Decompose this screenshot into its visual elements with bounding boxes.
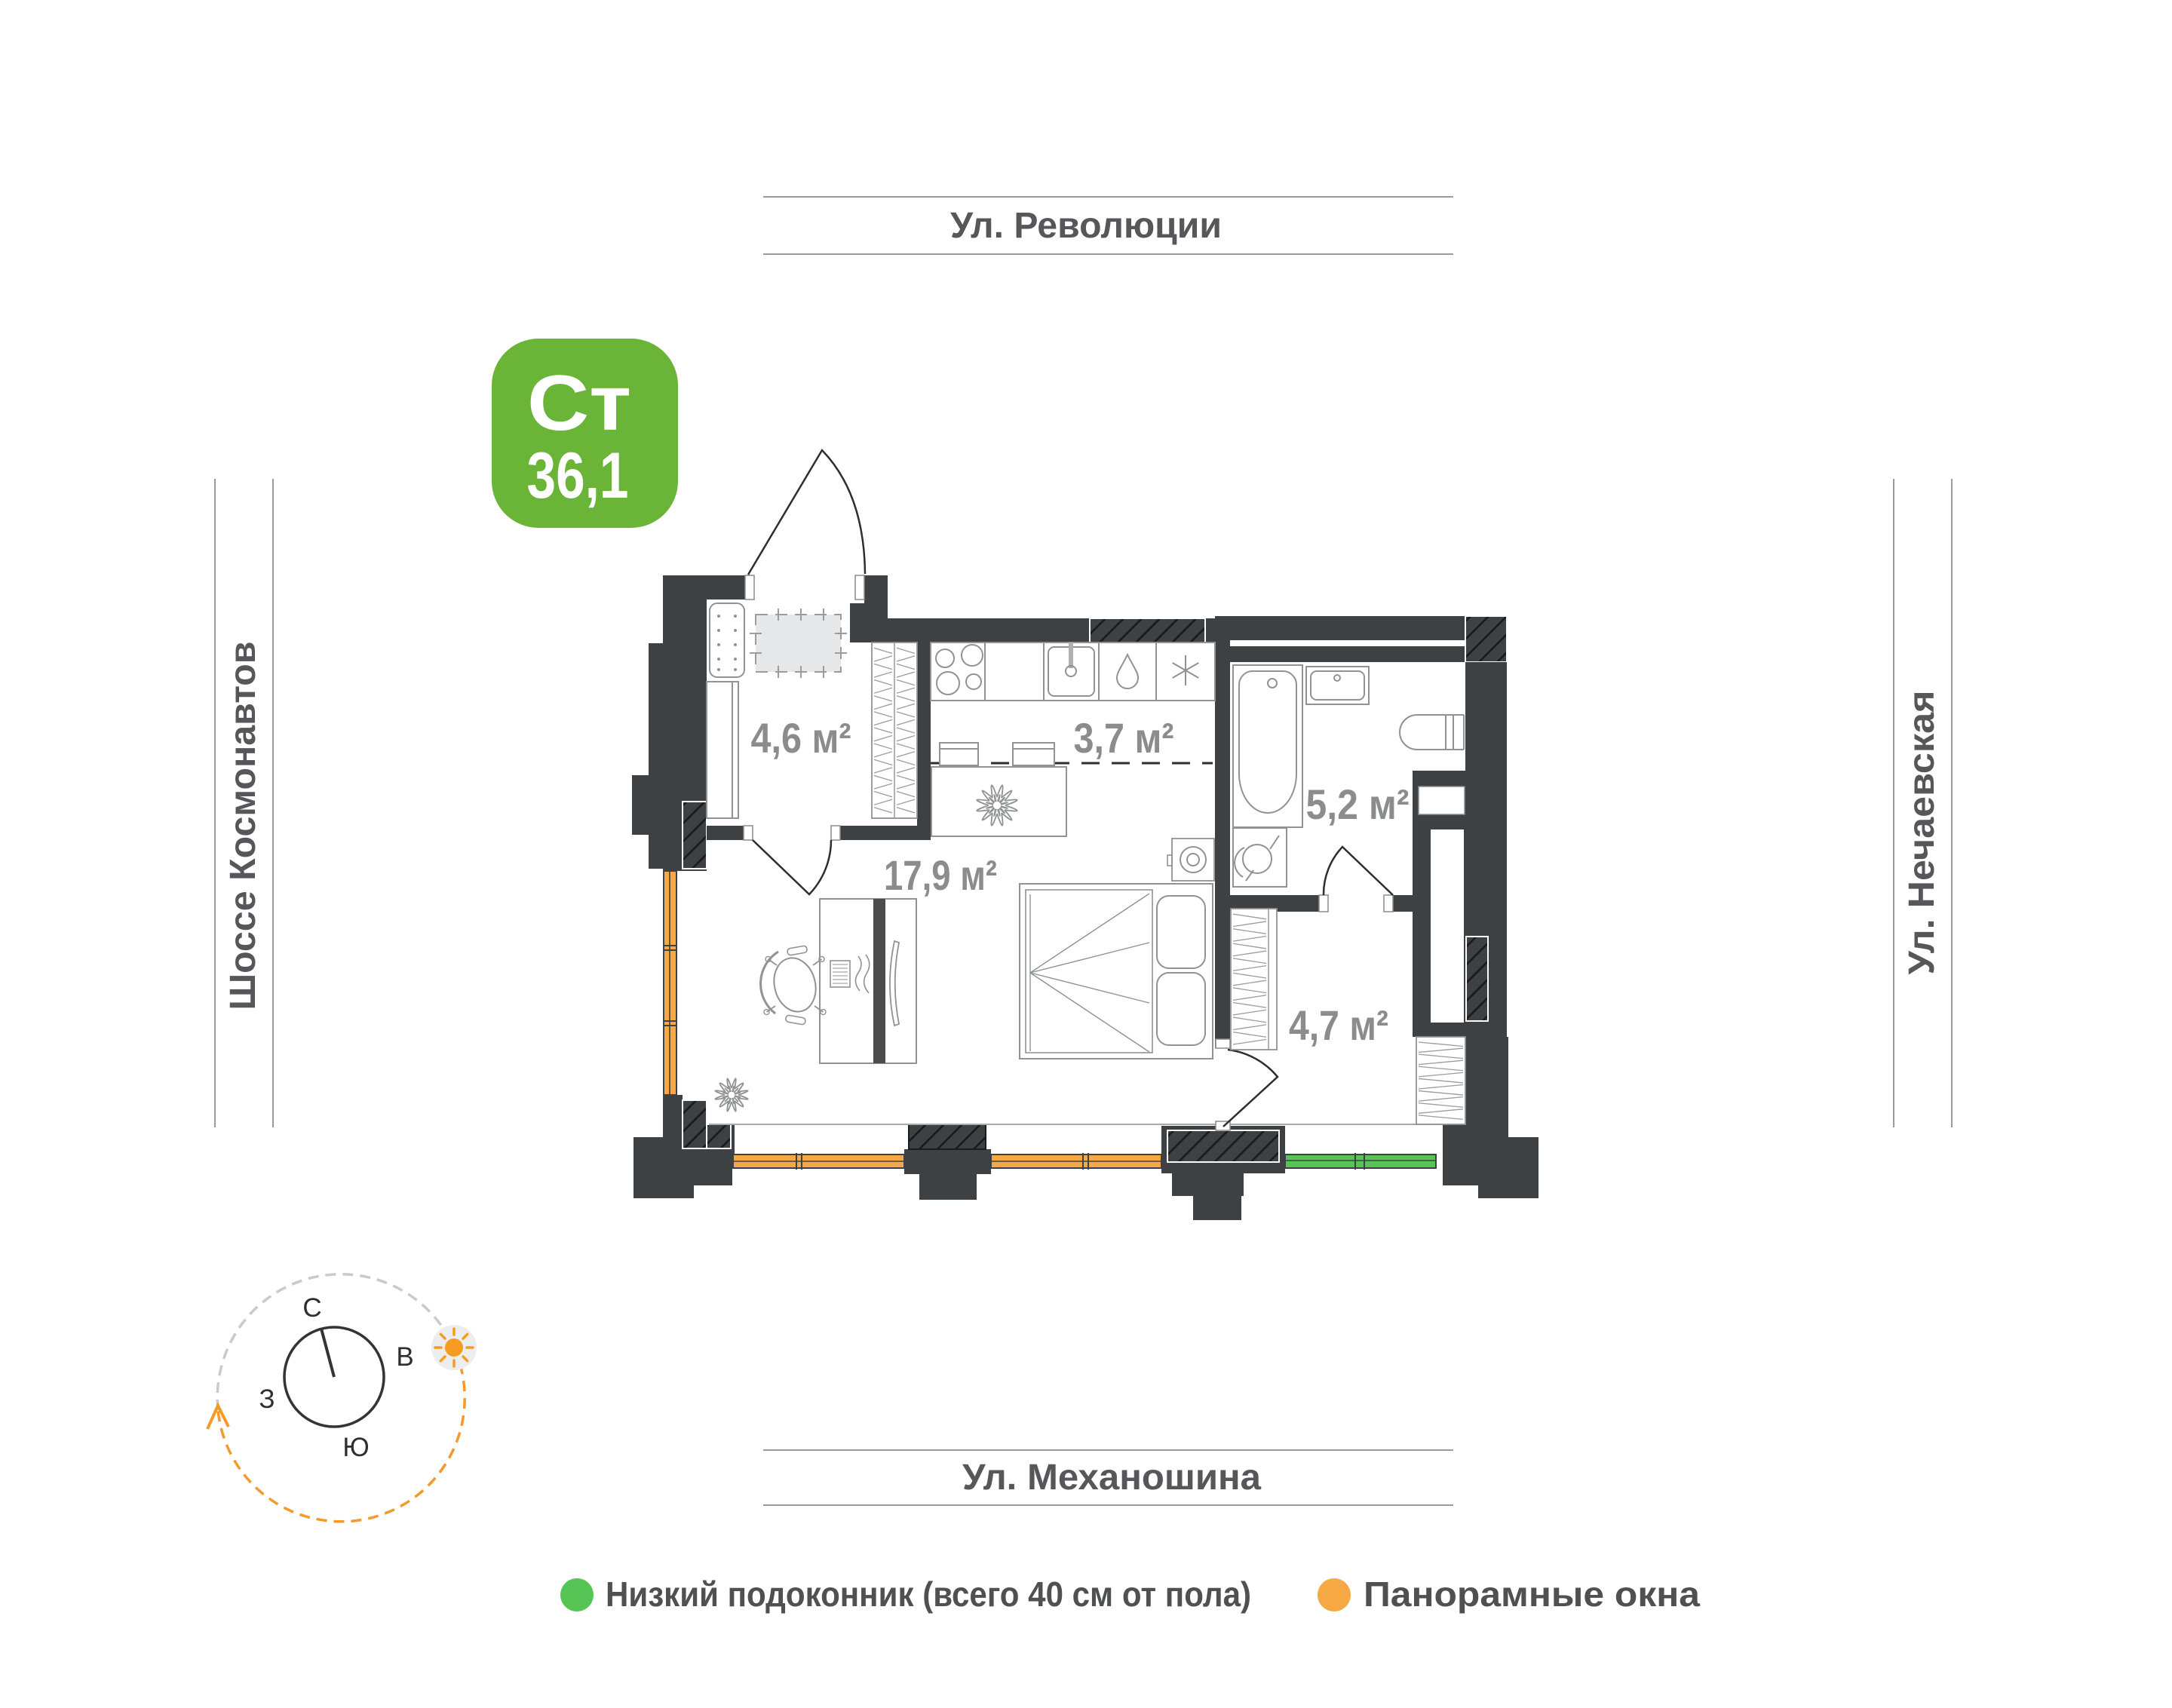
svg-text:Ст: Ст: [527, 360, 631, 447]
svg-text:5,2 м²: 5,2 м²: [1306, 780, 1410, 828]
svg-text:17,9 м²: 17,9 м²: [884, 851, 997, 899]
svg-text:4,6 м²: 4,6 м²: [751, 714, 851, 762]
svg-text:Ю: Ю: [342, 1433, 369, 1462]
svg-text:3,7 м²: 3,7 м²: [1074, 714, 1174, 762]
svg-text:Ул. Нечаевская: Ул. Нечаевская: [1902, 691, 1942, 975]
svg-text:Панорамные окна: Панорамные окна: [1364, 1575, 1700, 1614]
svg-text:36,1: 36,1: [527, 440, 629, 512]
svg-text:С: С: [302, 1293, 321, 1323]
svg-text:Ул. Революции: Ул. Революции: [950, 206, 1222, 246]
svg-text:Шоссе Космонавтов: Шоссе Космонавтов: [223, 642, 263, 1010]
svg-text:Низкий подоконник (всего 40 см: Низкий подоконник (всего 40 см от пола): [606, 1575, 1251, 1614]
svg-text:4,7 м²: 4,7 м²: [1289, 1001, 1388, 1049]
svg-text:Ул. Механошина: Ул. Механошина: [962, 1458, 1261, 1498]
svg-text:В: В: [396, 1342, 413, 1372]
svg-text:З: З: [259, 1384, 275, 1414]
